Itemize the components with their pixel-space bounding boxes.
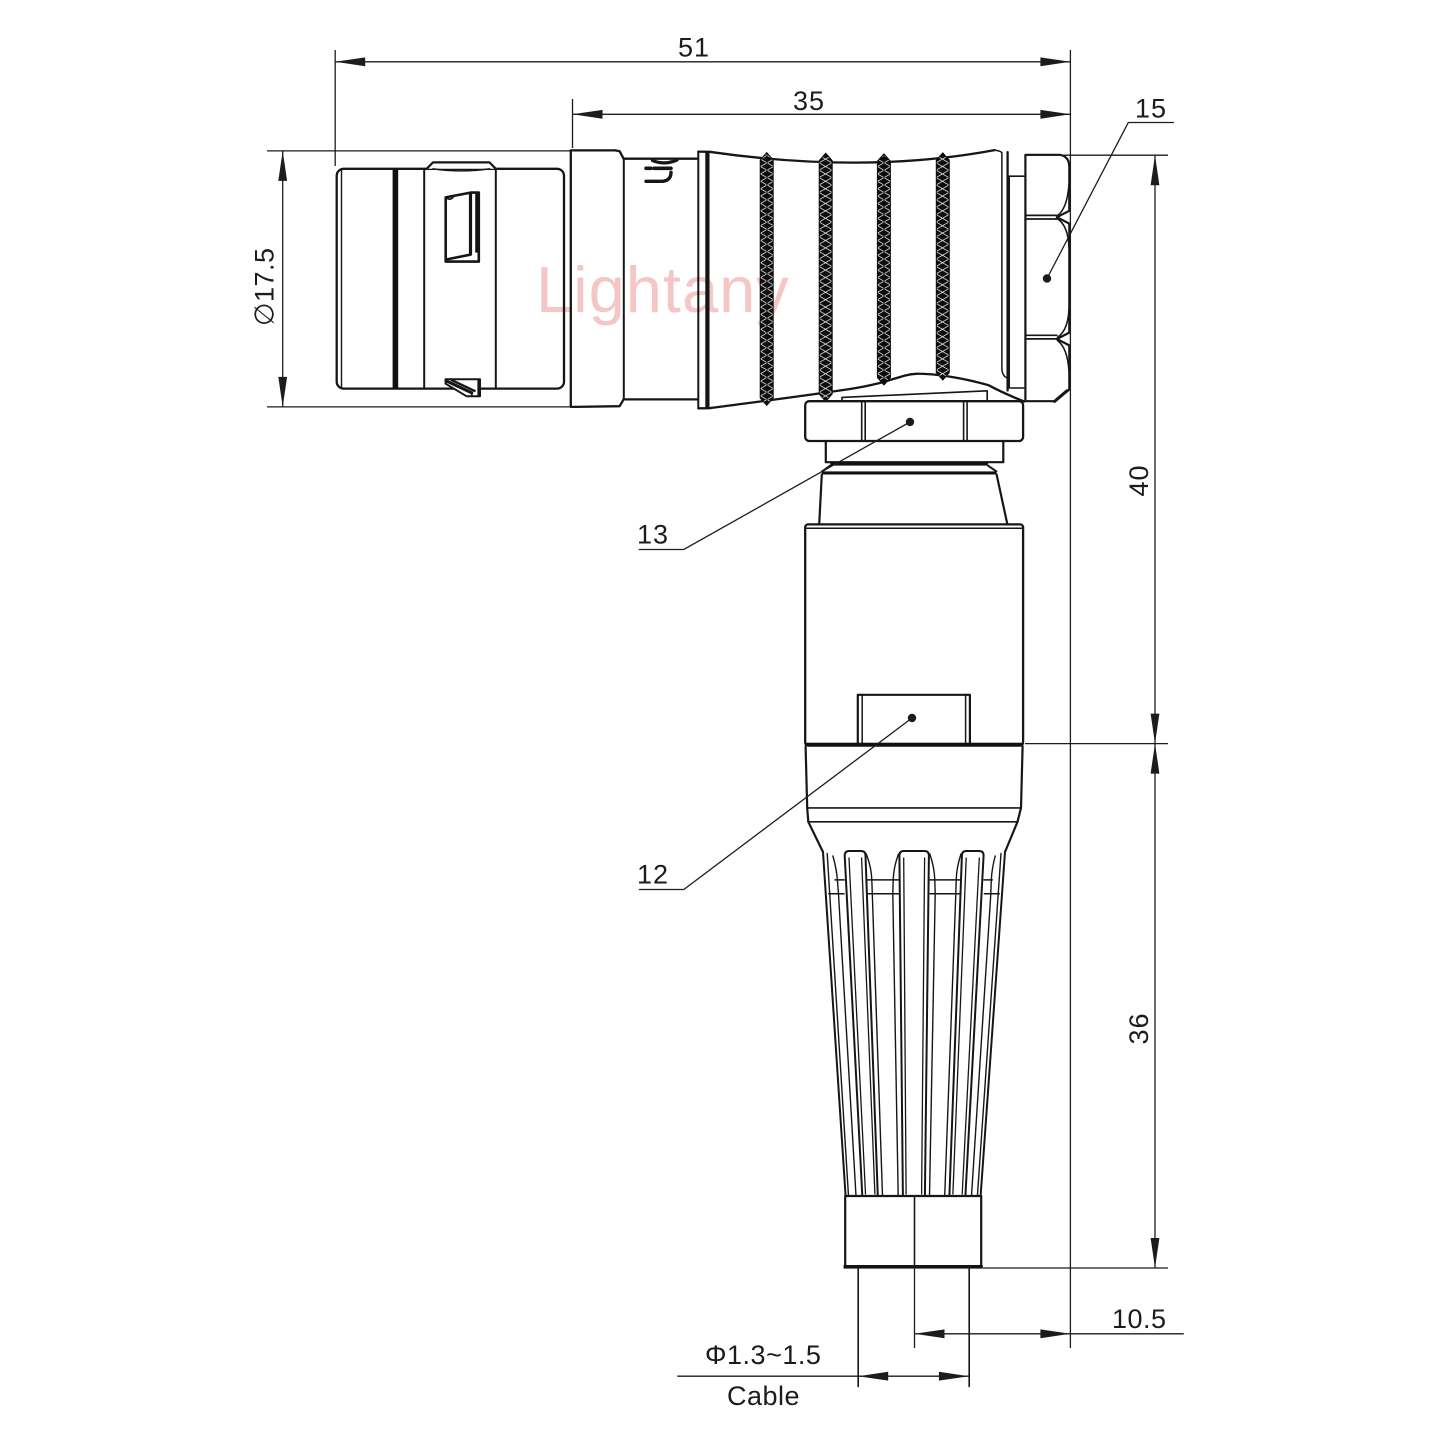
svg-text:36: 36	[1124, 1012, 1154, 1044]
svg-text:∅17.5: ∅17.5	[250, 247, 280, 326]
svg-text:40: 40	[1124, 464, 1154, 496]
svg-text:35: 35	[793, 86, 825, 116]
svg-text:10.5: 10.5	[1112, 1304, 1167, 1334]
svg-text:Lightany: Lightany	[536, 253, 790, 326]
svg-text:12: 12	[637, 860, 669, 890]
svg-text:13: 13	[637, 520, 669, 550]
svg-text:15: 15	[1135, 94, 1167, 124]
svg-text:51: 51	[678, 33, 710, 63]
svg-text:Cable: Cable	[727, 1381, 800, 1411]
svg-text:Φ1.3~1.5: Φ1.3~1.5	[705, 1340, 821, 1370]
